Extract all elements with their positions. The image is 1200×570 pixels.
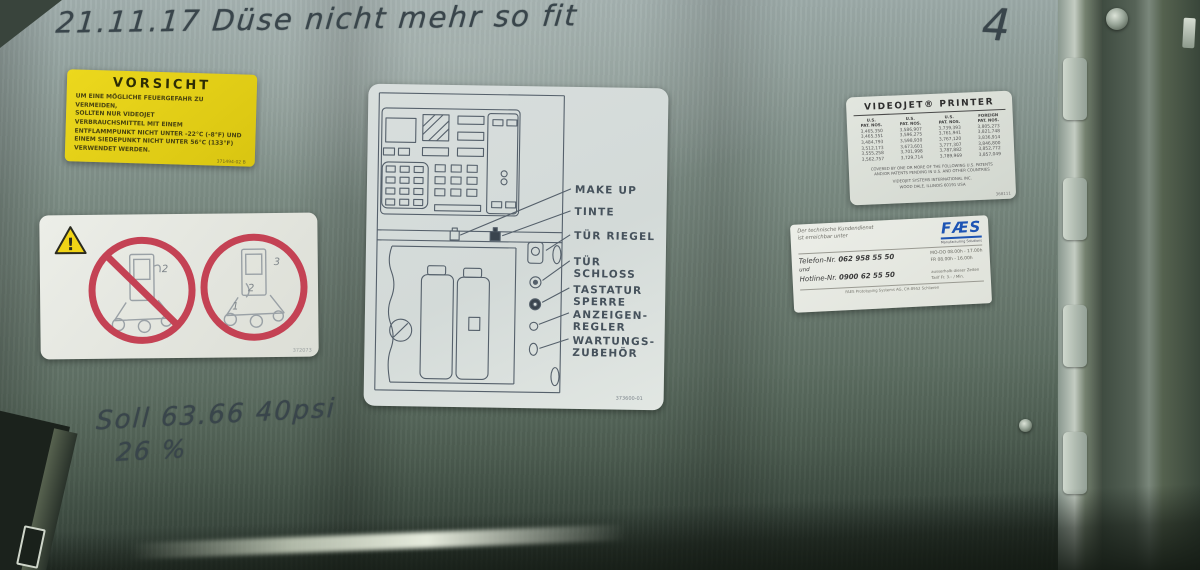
hinge-knuckle: [1063, 58, 1087, 120]
hinge-knuckle: [1063, 432, 1087, 494]
top-left-corner-shadow: [0, 0, 62, 48]
hinge-knuckle: [1063, 178, 1087, 240]
step-number: 2: [248, 283, 254, 294]
patent-column-header: U.S. PAT. NOS.: [854, 118, 889, 129]
display-knob-icon: [530, 322, 538, 330]
label-tinte: TINTE: [574, 206, 614, 219]
handwritten-page-number: 4: [981, 0, 1014, 52]
warning-triangle-icon: !: [55, 227, 85, 255]
faes-contact-row: Telefon-Nr. 062 958 55 50 und Hotline-Nr…: [799, 249, 984, 287]
vorsicht-caution-label: VORSICHT UM EINE MÖGLICHE FEUERGEFAHR ZU…: [65, 69, 258, 167]
faes-phone-block: Telefon-Nr. 062 958 55 50 und Hotline-Nr…: [799, 253, 896, 287]
cabinet-photo: 21.11.17 Düse nicht mehr so fit 4 Soll 6…: [0, 0, 1200, 570]
ink-bottle-icon: [490, 228, 500, 241]
patent-column: U.S. PAT. NOS. 3,739,393 3,761,941 3,767…: [932, 114, 969, 160]
patent-column-values: 3,805,273 3,821,748 3,836,914 3,846,800 …: [971, 123, 1007, 159]
keyboard-lock-icon: [530, 299, 541, 310]
label-zubehoer: ZUBEHÖR: [572, 345, 638, 360]
faes-logo-subtitle: Manufacturing Solutions: [941, 239, 982, 245]
manufacturer-footnote: VIDEOJET SYSTEMS INTERNATIONAL INC. WOOD…: [856, 174, 1008, 191]
label-regler: REGLER: [573, 321, 626, 334]
printer-diagram-graphic: MAKE UP TINTE TÜR RIEGEL TÜR SCHLOSS TAS…: [363, 84, 668, 411]
transport-prohibition-label: ! 2 3 2 1: [39, 213, 318, 360]
transport-part-number: 372073: [293, 348, 312, 354]
faes-logo: FÆS: [940, 220, 982, 240]
make-up-bottle-icon: [450, 228, 459, 240]
service-port-icon: [529, 343, 537, 355]
faes-hours: MO-DO 08.00h - 17.00h FR 08.00h - 16.00h: [930, 249, 983, 265]
videojet-part-number: 368111: [996, 191, 1011, 197]
patent-column-header: U.S. PAT. NOS.: [893, 116, 928, 127]
slot-icon: [553, 246, 561, 264]
frame-latch: [1182, 18, 1196, 49]
door-latch-icon: [528, 242, 543, 263]
patent-column: U.S. PAT. NOS. 3,465,350 3,465,351 3,484…: [854, 118, 891, 164]
patent-table: U.S. PAT. NOS. 3,465,350 3,465,351 3,484…: [854, 113, 1008, 164]
label-sperre: SPERRE: [573, 296, 626, 309]
label-tuer: TÜR: [574, 254, 602, 268]
hotline-label: Hotline-Nr.: [799, 273, 837, 283]
patent-column-values: 3,739,393 3,761,941 3,767,120 3,777,307 …: [932, 125, 968, 161]
slot-icon: [551, 368, 559, 386]
patent-column-values: 3,586,907 3,596,275 3,598,930 3,673,601 …: [893, 127, 929, 163]
faes-logo-block: FÆS Manufacturing Solutions: [940, 220, 982, 245]
patent-column-header: FOREIGN PAT. NOS.: [971, 113, 1006, 124]
telefon-number: 062 958 55 50: [838, 253, 894, 264]
vorsicht-title: VORSICHT: [76, 74, 248, 94]
screw-icon: [1106, 8, 1128, 30]
faes-intro-text: Der technische Kundendienst ist erreichb…: [797, 225, 874, 252]
label-make-up: MAKE UP: [575, 184, 637, 197]
faes-hours-block: MO-DO 08.00h - 17.00h FR 08.00h - 16.00h…: [930, 249, 984, 281]
control-console-sketch: [381, 108, 521, 216]
handwritten-percent-note: 26 %: [115, 434, 188, 467]
videojet-patent-label: VIDEOJET® PRINTER U.S. PAT. NOS. 3,465,3…: [846, 91, 1016, 206]
step-number: 1: [232, 301, 238, 312]
step-number: 3: [274, 257, 280, 268]
patent-column: FOREIGN PAT. NOS. 3,805,273 3,821,748 3,…: [971, 113, 1008, 159]
transport-label-graphic: ! 2 3 2 1: [39, 213, 318, 360]
label-tuer-riegel: TÜR RIEGEL: [574, 228, 655, 243]
diagram-part-number: 373600-01: [616, 396, 643, 402]
patent-column: U.S. PAT. NOS. 3,586,907 3,596,275 3,598…: [893, 116, 930, 162]
faes-service-label: Der technische Kundendienst ist erreichb…: [790, 215, 992, 313]
printer-diagram-label: MAKE UP TINTE TÜR RIEGEL TÜR SCHLOSS TAS…: [363, 84, 668, 411]
handwritten-note-top: 21.11.17 Düse nicht mehr so fit: [54, 0, 579, 40]
warning-exclamation: !: [67, 235, 75, 255]
step-number: 2: [162, 264, 168, 275]
fluid-cabinet-sketch: [387, 246, 516, 384]
faes-after-hours: ausserhalb dieser Zeiten Tarif Fr. 3.– /…: [931, 267, 984, 280]
door-lock-icon: [530, 277, 541, 288]
keypad-grid: [386, 166, 424, 206]
label-tastatur: TASTATUR: [573, 284, 642, 297]
telefon-label: Telefon-Nr.: [799, 256, 837, 266]
patent-column-values: 3,465,350 3,465,351 3,484,793 3,512,173 …: [854, 128, 890, 164]
function-key-grid: [435, 165, 482, 212]
hinge-knuckle: [1063, 305, 1087, 367]
hotline-number: 0900 62 55 50: [839, 270, 895, 281]
screw-icon: [1019, 419, 1032, 432]
patent-column-header: U.S. PAT. NOS.: [932, 114, 967, 125]
handwritten-soll-note: Soll 63.66 40psi: [95, 394, 336, 437]
label-schloss: SCHLOSS: [573, 268, 636, 281]
vorsicht-body-text: UM EINE MÖGLICHE FEUERGEFAHR ZU VERMEIDE…: [74, 92, 248, 158]
